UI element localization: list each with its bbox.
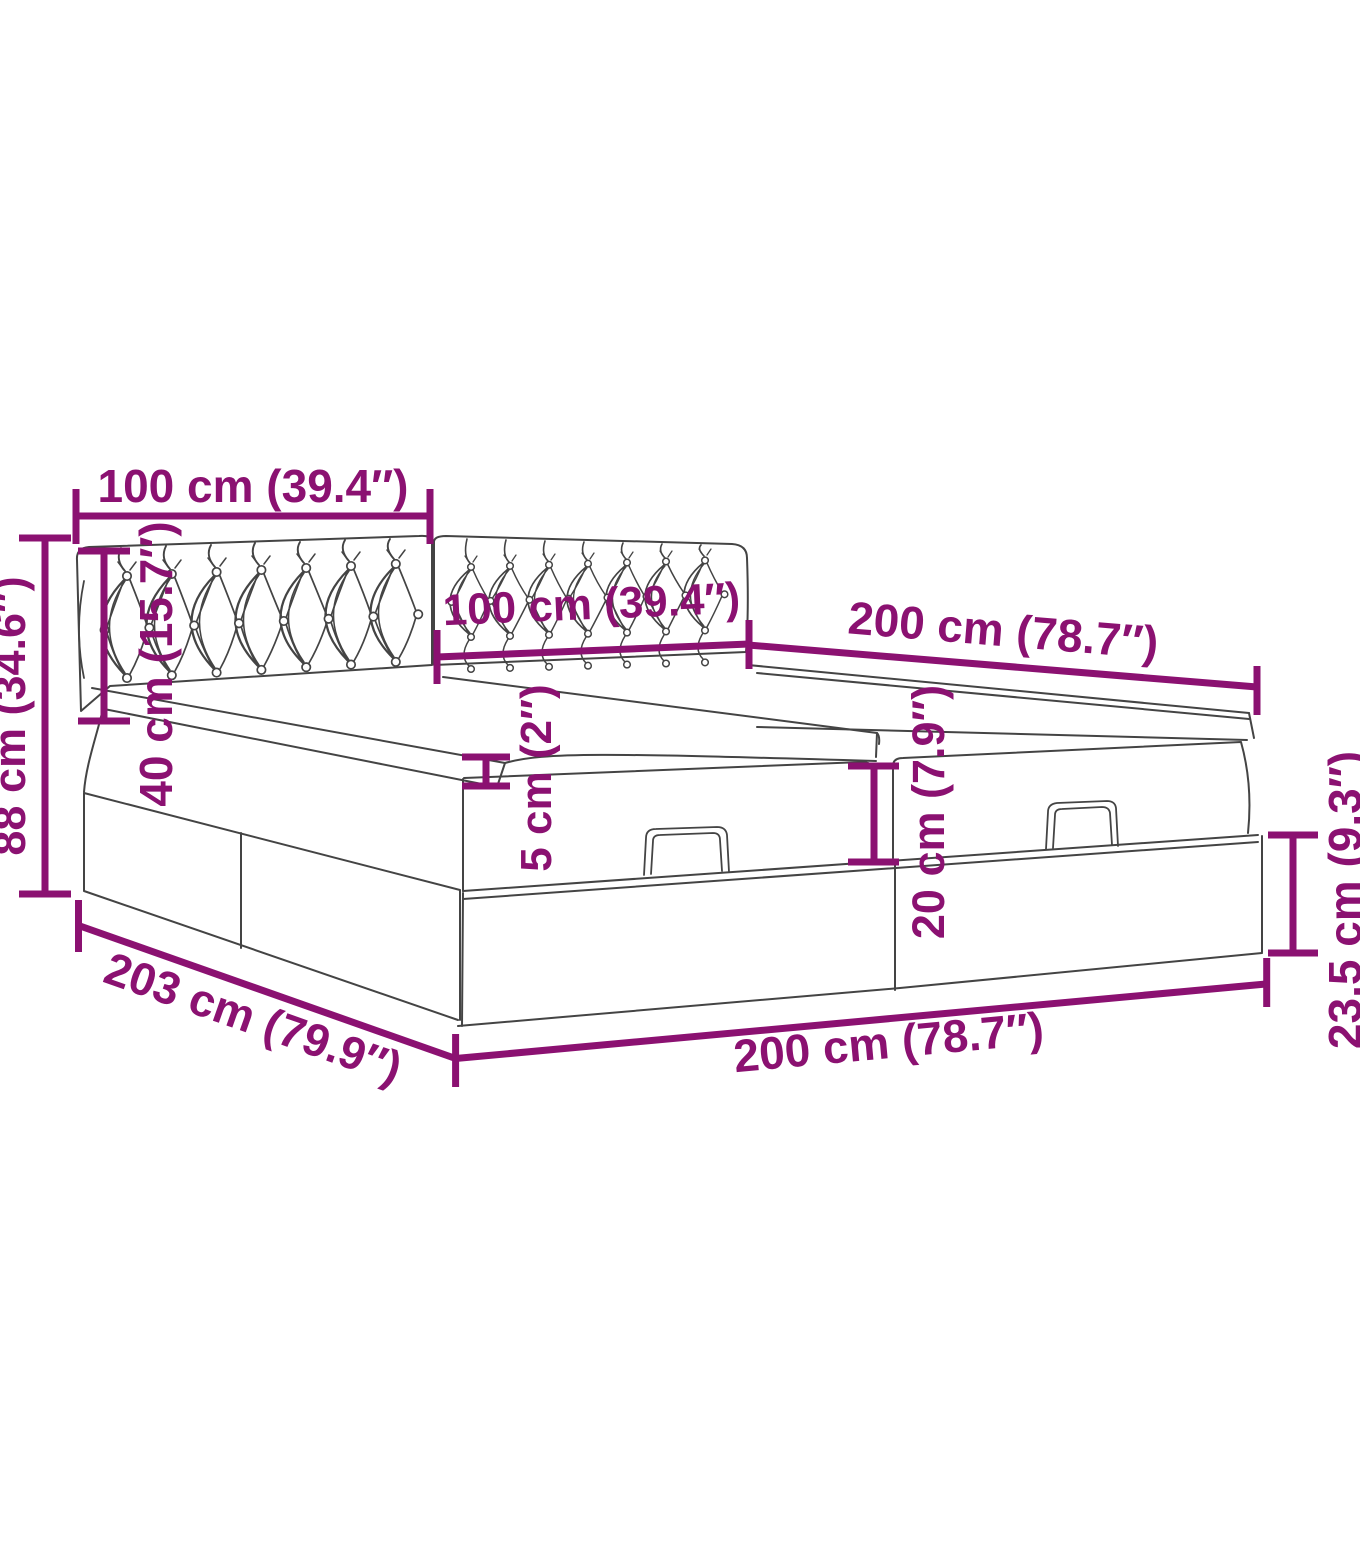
svg-text:23.5 cm (9.3″): 23.5 cm (9.3″)	[1319, 751, 1360, 1049]
svg-text:88 cm (34.6″): 88 cm (34.6″)	[0, 576, 35, 855]
svg-text:5 cm (2″): 5 cm (2″)	[512, 684, 561, 871]
svg-text:100 cm (39.4″): 100 cm (39.4″)	[98, 460, 409, 512]
svg-text:40 cm (15.7″): 40 cm (15.7″)	[130, 521, 182, 806]
svg-text:20 cm (7.9″): 20 cm (7.9″)	[903, 685, 954, 939]
